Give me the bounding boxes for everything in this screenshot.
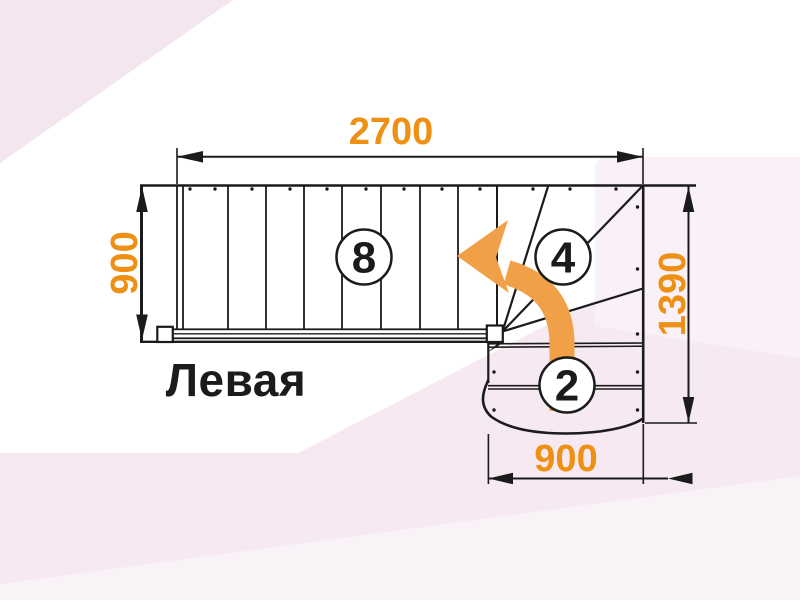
newel-post-right	[487, 326, 503, 343]
newel-post-left	[157, 327, 173, 342]
badge-winders-count: 4	[551, 234, 576, 283]
background-highlight-upper	[595, 157, 800, 358]
page-title: Левая	[166, 354, 306, 406]
stair-plan-drawing: 2700 900 1390 900 8 4 2 Левая	[0, 0, 800, 600]
staircase-plan-page: 2700 900 1390 900 8 4 2 Левая	[0, 0, 800, 600]
dimension-label-right: 1390	[652, 252, 694, 337]
badge-bottom-flight-count: 2	[555, 362, 579, 411]
dimension-label-top: 2700	[349, 111, 434, 153]
dimension-label-left: 900	[104, 231, 146, 294]
badge-straight-flight-count: 8	[352, 234, 376, 283]
dimension-label-bottom: 900	[534, 438, 597, 480]
